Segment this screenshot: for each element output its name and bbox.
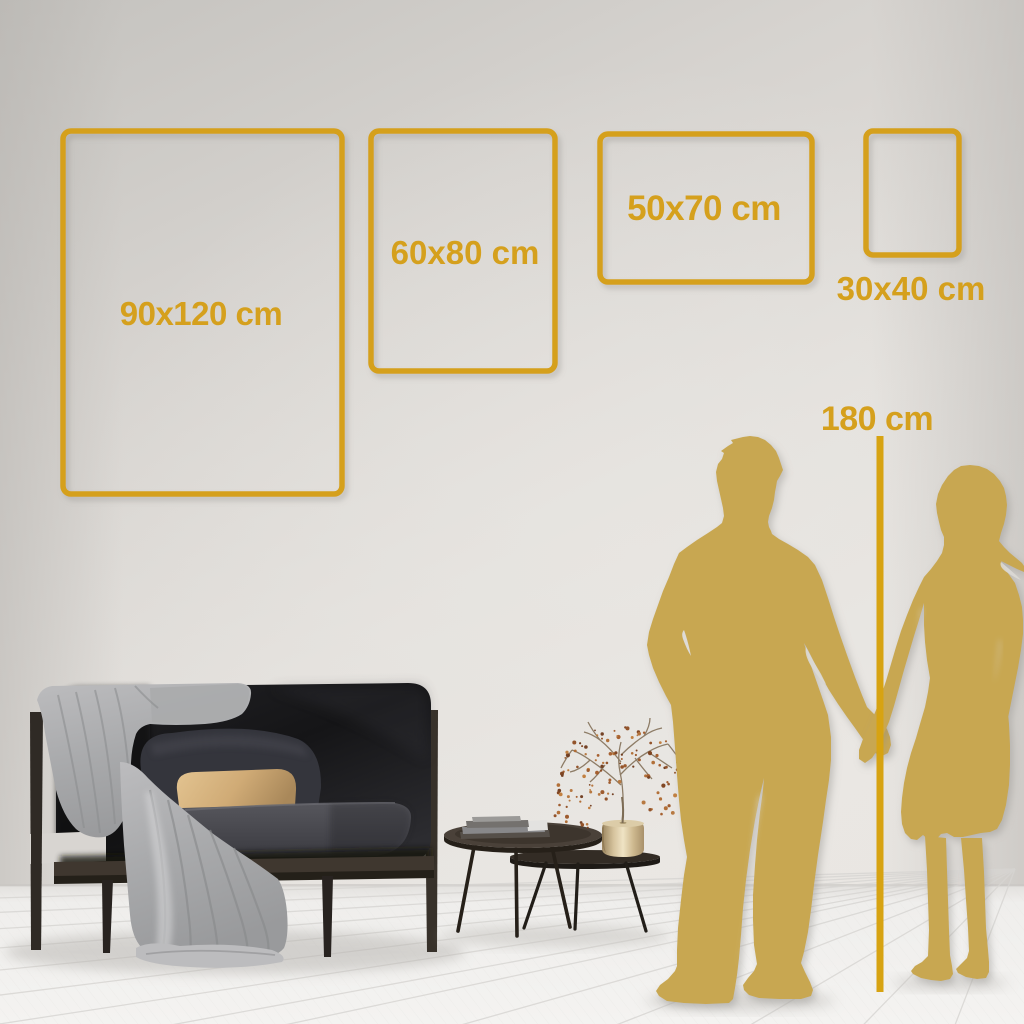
svg-text:50x70 cm: 50x70 cm [627, 189, 781, 228]
svg-text:180 cm: 180 cm [821, 400, 933, 438]
svg-text:60x80 cm: 60x80 cm [391, 234, 540, 271]
svg-text:30x40 cm: 30x40 cm [837, 270, 986, 307]
svg-text:90x120 cm: 90x120 cm [120, 295, 282, 332]
